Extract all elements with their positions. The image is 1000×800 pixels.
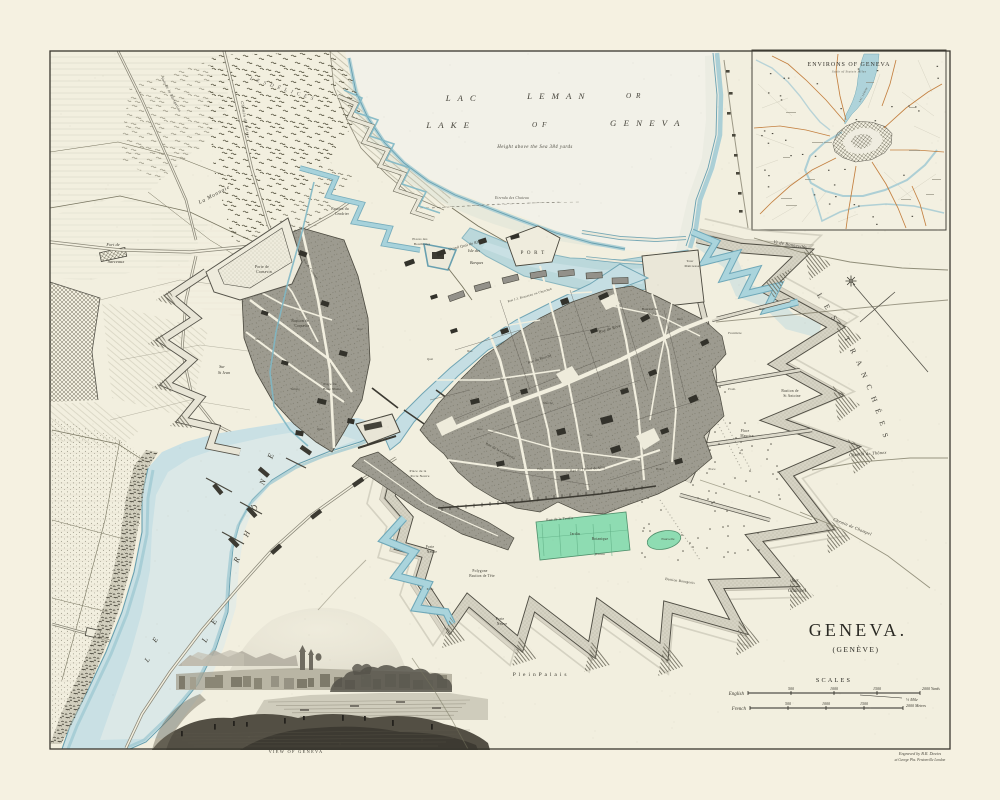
svg-text:Rive: Rive	[677, 317, 684, 321]
svg-text:Place de la: Place de la	[410, 469, 427, 473]
svg-text:Sur: Sur	[219, 364, 225, 369]
svg-text:English: English	[728, 692, 745, 697]
svg-text:G E N E V A: G E N E V A	[610, 118, 682, 128]
svg-text:Neuve: Neuve	[427, 550, 438, 554]
svg-text:at George Phs. Pentonville Lon: at George Phs. Pentonville London	[895, 758, 946, 762]
svg-text:2000 Metres: 2000 Metres	[906, 703, 926, 708]
svg-text:½ Mile: ½ Mile	[906, 697, 918, 702]
svg-text:Maurice: Maurice	[740, 434, 754, 438]
svg-text:St Antoine: St Antoine	[783, 394, 800, 398]
svg-text:1500: 1500	[860, 701, 868, 706]
svg-text:Porte: Porte	[427, 587, 434, 591]
svg-text:Rue: Rue	[587, 433, 593, 437]
svg-text:1000: 1000	[830, 686, 838, 691]
svg-text:Bastion de: Bastion de	[781, 389, 798, 393]
svg-text:French: French	[731, 707, 747, 712]
svg-text:Cornavin: Cornavin	[295, 324, 310, 328]
svg-text:(GENÈVE): (GENÈVE)	[833, 644, 880, 654]
svg-text:Polygone: Polygone	[472, 569, 487, 573]
svg-text:Jardin: Jardin	[570, 532, 580, 536]
svg-text:O R: O R	[626, 92, 642, 100]
svg-text:Tour: Tour	[686, 259, 694, 263]
svg-text:Porte de: Porte de	[255, 265, 269, 269]
svg-text:Marché: Marché	[543, 401, 553, 405]
svg-text:Sur: Sur	[792, 579, 799, 584]
svg-text:L E M A N: L E M A N	[526, 91, 587, 101]
svg-text:Boucheries: Boucheries	[414, 242, 431, 246]
svg-text:Rue: Rue	[255, 337, 261, 341]
svg-text:1000: 1000	[822, 701, 830, 706]
svg-text:St: St	[699, 357, 702, 361]
svg-text:Cendrier: Cendrier	[335, 212, 350, 216]
svg-text:Porte Neuve: Porte Neuve	[410, 474, 429, 478]
svg-text:Barques: Barques	[470, 260, 484, 265]
svg-text:500: 500	[788, 686, 794, 691]
svg-text:ENVIRONS OF GENEVA: ENVIRONS OF GENEVA	[808, 62, 891, 68]
svg-text:P O R T: P O R T	[521, 251, 546, 256]
svg-text:Isle des: Isle des	[467, 248, 481, 253]
svg-text:Scale of Statute Miles: Scale of Statute Miles	[832, 70, 867, 74]
svg-text:Temple: Temple	[290, 387, 300, 391]
svg-text:P l e i n P a l a i s: P l e i n P a l a i s	[513, 672, 568, 678]
svg-text:L A C: L A C	[445, 93, 479, 103]
svg-text:Cornavin: Cornavin	[256, 270, 272, 274]
svg-text:O F: O F	[532, 121, 548, 129]
svg-text:Botanique: Botanique	[592, 537, 609, 541]
svg-text:Rue: Rue	[357, 327, 363, 331]
svg-text:Bastion du: Bastion du	[331, 207, 348, 211]
svg-text:Place du: Place du	[323, 382, 336, 386]
svg-text:Porte: Porte	[496, 617, 505, 621]
svg-text:Places des: Places des	[412, 237, 428, 241]
svg-text:Sarceaux: Sarceaux	[108, 259, 125, 264]
svg-text:Rue: Rue	[467, 349, 473, 353]
svg-text:Place: Place	[709, 467, 717, 471]
svg-text:Nouvelle: Nouvelle	[661, 537, 675, 541]
svg-text:Rue: Rue	[477, 427, 483, 431]
svg-text:VIEW OF GENEVA: VIEW OF GENEVA	[269, 749, 324, 754]
svg-text:Porte: Porte	[426, 545, 435, 549]
svg-text:Place: Place	[741, 429, 750, 433]
svg-text:Bastion de: Bastion de	[642, 307, 659, 311]
svg-text:SCALES: SCALES	[816, 677, 852, 684]
svg-text:Rue du: Rue du	[500, 377, 510, 381]
svg-text:St Jean: St Jean	[218, 370, 230, 375]
svg-text:Bastion de Tête: Bastion de Tête	[469, 574, 495, 578]
svg-text:Ville: Ville	[537, 467, 544, 471]
svg-text:Quai: Quai	[427, 357, 433, 361]
svg-text:Neuve: Neuve	[497, 622, 508, 626]
svg-text:Quai: Quai	[317, 427, 323, 431]
svg-text:Bastion: Bastion	[595, 552, 605, 556]
svg-text:L A K E: L A K E	[425, 120, 471, 130]
svg-text:Engraved by B.R. Davies: Engraved by B.R. Davies	[898, 751, 942, 756]
svg-text:Bastion de: Bastion de	[291, 319, 308, 323]
svg-text:Prom.: Prom.	[728, 387, 736, 391]
svg-text:Bone Nome: Bone Nome	[323, 387, 341, 391]
svg-text:Fort de: Fort de	[105, 242, 119, 247]
svg-text:1500: 1500	[873, 686, 881, 691]
svg-text:Etrendu des Chateau: Etrendu des Chateau	[494, 196, 529, 200]
svg-text:Height above the Sea 384 yard: Height above the Sea 384 yards	[496, 145, 573, 150]
svg-text:GENEVA.: GENEVA.	[809, 620, 908, 640]
svg-text:2000 Yards: 2000 Yards	[922, 686, 940, 691]
svg-text:Bourg: Bourg	[656, 467, 664, 471]
svg-text:Hesse: Hesse	[647, 312, 656, 316]
svg-text:Maitresse: Maitresse	[685, 264, 700, 268]
svg-text:Rue: Rue	[622, 387, 628, 391]
svg-text:500: 500	[785, 701, 791, 706]
svg-text:Frontière: Frontière	[728, 331, 742, 335]
svg-text:Rue: Rue	[759, 307, 765, 311]
svg-text:Champel: Champel	[788, 589, 807, 594]
